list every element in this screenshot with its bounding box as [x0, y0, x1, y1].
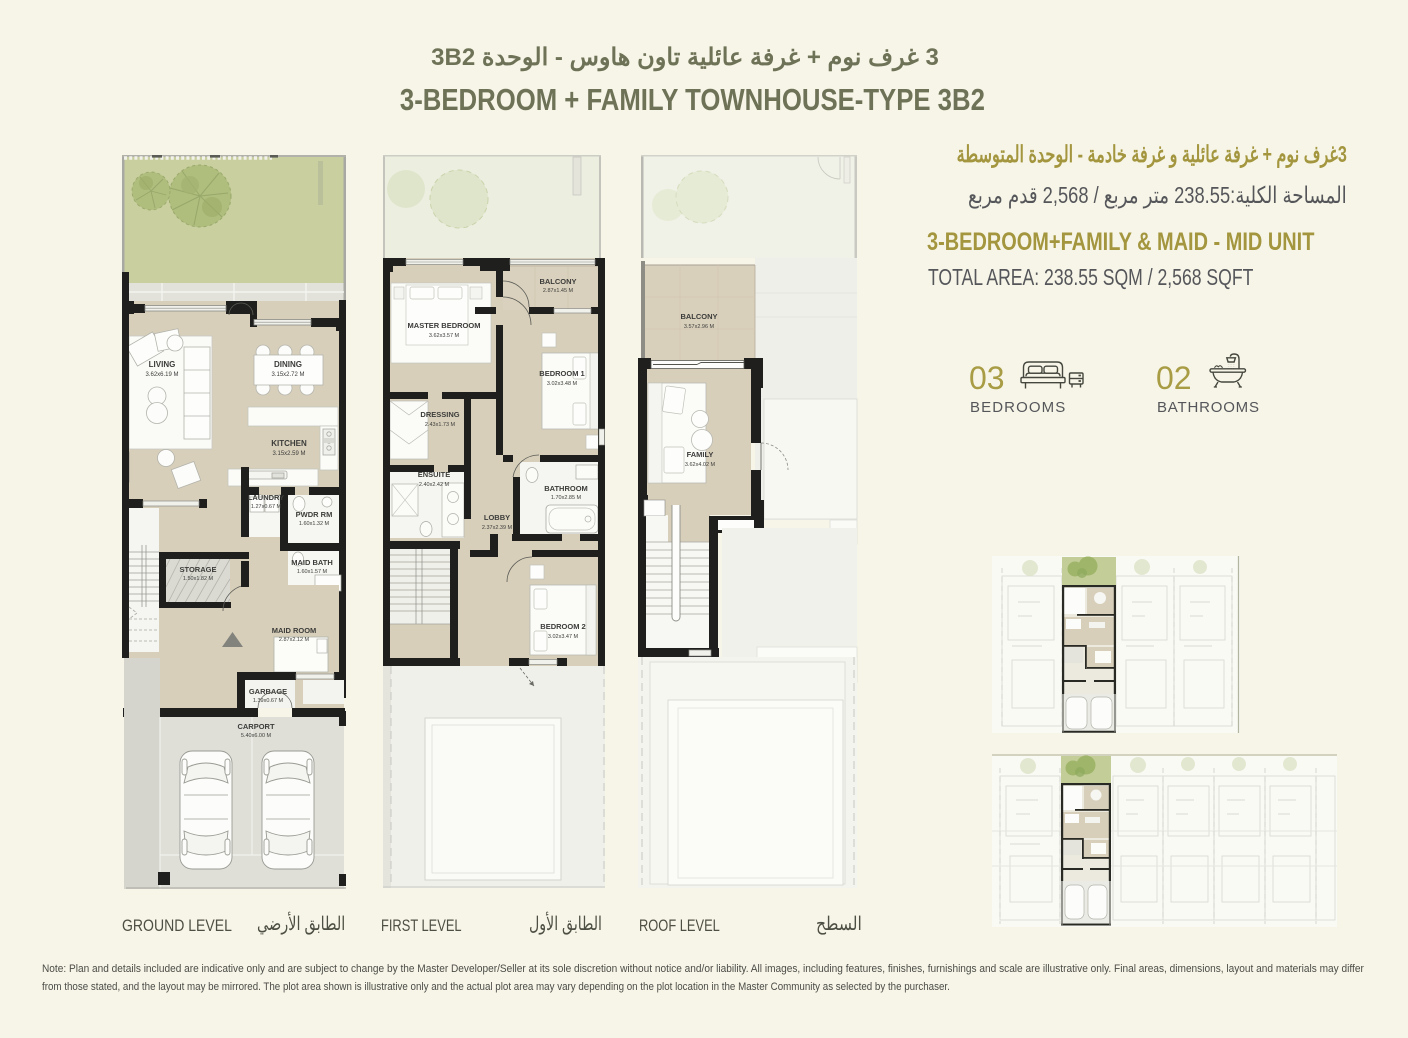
svg-text:CARPORT: CARPORT: [237, 722, 275, 731]
svg-text:3.15x2.72 M: 3.15x2.72 M: [271, 372, 304, 378]
svg-text:2.87x2.12 M: 2.87x2.12 M: [279, 637, 310, 643]
svg-text:1.50x1.82 M: 1.50x1.82 M: [183, 576, 214, 582]
svg-text:3.15x2.59 M: 3.15x2.59 M: [272, 451, 305, 457]
svg-text:2.43x1.73 M: 2.43x1.73 M: [425, 422, 456, 428]
svg-text:3.02x3.48 M: 3.02x3.48 M: [547, 381, 578, 387]
svg-text:3.62x4.02 M: 3.62x4.02 M: [685, 462, 716, 468]
svg-text:BALCONY: BALCONY: [680, 312, 717, 321]
svg-text:2.37x2.39 M: 2.37x2.39 M: [482, 525, 513, 531]
svg-text:DINING: DINING: [274, 360, 302, 369]
svg-text:FAMILY: FAMILY: [687, 450, 714, 459]
svg-text:1.70x2.85 M: 1.70x2.85 M: [551, 495, 582, 501]
svg-text:LOBBY: LOBBY: [484, 513, 510, 522]
svg-text:3.57x2.96 M: 3.57x2.96 M: [684, 324, 715, 330]
svg-text:3.62x3.57 M: 3.62x3.57 M: [429, 333, 460, 339]
svg-text:BATHROOM: BATHROOM: [544, 484, 588, 493]
svg-text:2.40x2.42 M: 2.40x2.42 M: [419, 482, 450, 488]
svg-text:1.60x1.32 M: 1.60x1.32 M: [299, 521, 330, 527]
svg-text:BEDROOM 1: BEDROOM 1: [539, 369, 584, 378]
svg-text:BEDROOM 2: BEDROOM 2: [540, 622, 585, 631]
svg-text:3.02x3.47 M: 3.02x3.47 M: [548, 634, 579, 640]
svg-text:KITCHEN: KITCHEN: [271, 439, 307, 448]
svg-text:MAID BATH: MAID BATH: [291, 558, 333, 567]
svg-text:MASTER BEDROOM: MASTER BEDROOM: [408, 321, 481, 330]
svg-text:BALCONY: BALCONY: [539, 277, 576, 286]
svg-text:1.39x0.67 M: 1.39x0.67 M: [253, 698, 284, 704]
svg-text:MAID ROOM: MAID ROOM: [272, 626, 317, 635]
svg-text:GARBAGE: GARBAGE: [249, 687, 287, 696]
svg-text:3.62x6.19 M: 3.62x6.19 M: [145, 372, 178, 378]
svg-text:2.87x1.45 M: 2.87x1.45 M: [543, 288, 574, 294]
svg-text:DRESSING: DRESSING: [420, 410, 459, 419]
svg-text:1.27x0.67 M: 1.27x0.67 M: [251, 504, 282, 510]
svg-text:5.40x6.00 M: 5.40x6.00 M: [241, 733, 272, 739]
svg-text:STORAGE: STORAGE: [180, 565, 217, 574]
svg-text:LAUNDRY: LAUNDRY: [248, 493, 284, 502]
svg-text:PWDR RM: PWDR RM: [296, 510, 333, 519]
svg-text:LIVING: LIVING: [149, 360, 176, 369]
svg-text:1.60x1.57 M: 1.60x1.57 M: [297, 569, 328, 575]
